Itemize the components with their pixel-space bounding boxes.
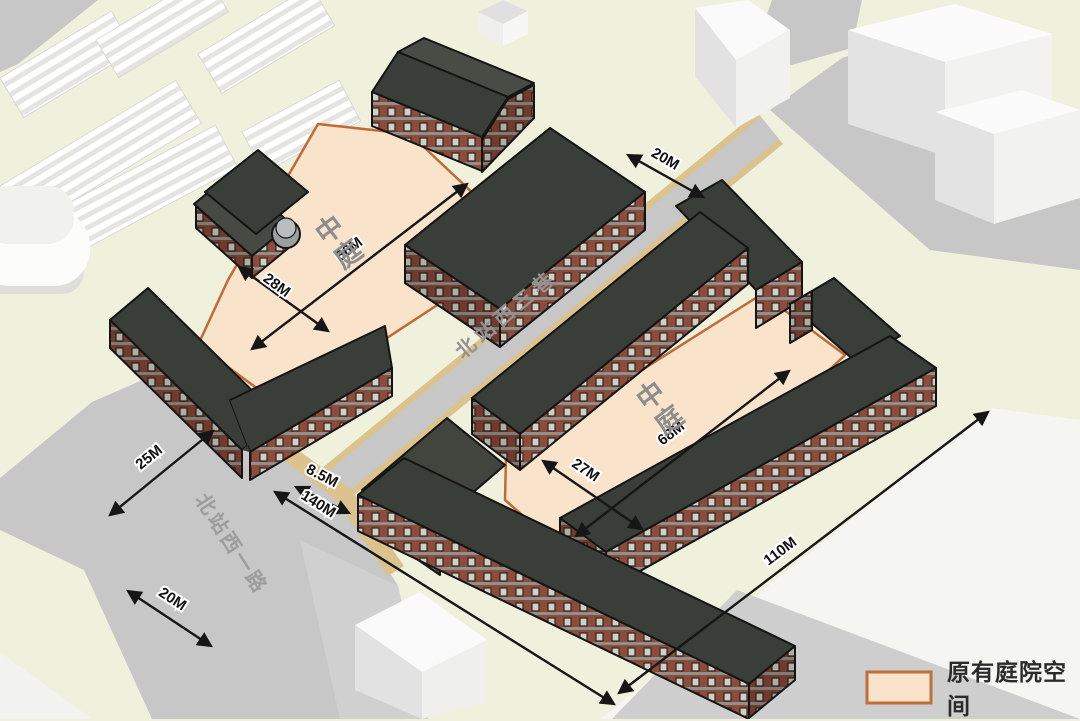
context-box-northeast-2 — [935, 90, 1080, 224]
legend-swatch-rect — [867, 672, 931, 703]
legend-label: 原有庭院空间 — [947, 653, 1080, 721]
legend-courtyard-swatch — [865, 670, 933, 705]
legend: 原有庭院空间 — [865, 653, 1080, 721]
site-axonometric-diagram: 20M 66M 28M 25M 8.5M 140M 20M 27M 68M 11… — [0, 0, 1080, 719]
